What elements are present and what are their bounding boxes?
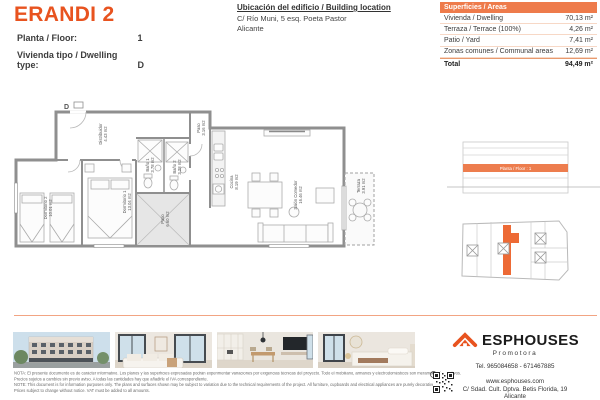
address-city: Alicante (430, 393, 600, 400)
row-label: Zonas comunes / Communal areas (444, 48, 553, 55)
address-line: C/ Sdad. Cult. Dptva. Betis Florida, 19 (430, 386, 600, 394)
qr-code (433, 372, 454, 393)
dwelling-type-row: Vivienda tipo / Dwelling type: D (17, 50, 144, 70)
room-label-dormitorio-2: Dormitorio 210.01 m2 (43, 196, 53, 219)
disclaimer-line: Prices subject to change without notice.… (14, 389, 422, 395)
dwelling-type-value: D (138, 60, 145, 70)
esphouses-house-icon (451, 330, 479, 351)
brand-logo-row: ESPHOUSES (430, 330, 600, 351)
floor-value: 1 (138, 33, 143, 43)
photo-kitchen-dining (217, 332, 313, 368)
building-location: Ubicación del edificio / Building locati… (237, 3, 391, 34)
contact-block: Tel. 965084658 - 671467885 www.esphouses… (430, 363, 600, 400)
site-plan-diagram (455, 218, 595, 310)
room-label-bano-1: Baño 13.78 m2 (145, 157, 155, 173)
room-label-bano-2: Baño 23.28 m2 (172, 159, 182, 175)
row-label: Vivienda / Dwelling (444, 15, 503, 22)
phone-line: Tel. 965084658 - 671467885 (430, 363, 600, 378)
row-label: Patio / Yard (444, 37, 480, 44)
areas-table-header: Superficies / Areas (440, 2, 597, 13)
disclaimer-line: NOTE: This document is for information p… (14, 383, 422, 389)
areas-table: Superficies / Areas Vivienda / Dwelling … (440, 2, 597, 70)
divider-rule (14, 315, 597, 316)
table-total-row: Total 94,49 m² (440, 58, 597, 70)
row-label: Terraza / Terrace (100%) (444, 26, 521, 33)
row-value: 70,13 m² (565, 15, 593, 22)
photo-building-exterior (13, 332, 110, 368)
row-value: 12,69 m² (565, 48, 593, 55)
building-location-city: Alicante (237, 24, 391, 34)
page-title: ERANDI 2 (14, 3, 114, 27)
building-location-address: C/ Río Muni, 5 esq. Poeta Pastor (237, 14, 391, 24)
table-row: Patio / Yard 7,41 m² (440, 35, 597, 46)
unit-letter: D (64, 104, 69, 111)
floor-plan: Distribuidor4.43 m2 Dormitorio 210.01 m2… (14, 98, 434, 255)
table-row: Zonas comunes / Communal areas 12,69 m² (440, 47, 597, 58)
disclaimer: NOTA: El presente documento es de caráct… (14, 371, 422, 394)
row-value: 4,26 m² (569, 26, 593, 33)
photo-living-room (115, 332, 212, 368)
floor-label: Planta / Floor: (17, 33, 135, 43)
room-label-terraza: Terraza3.91 m2 (356, 178, 366, 194)
table-row: Terraza / Terrace (100%) 4,26 m² (440, 24, 597, 35)
photo-bedroom (318, 332, 415, 368)
total-value: 94,49 m² (565, 61, 593, 68)
floor-row: Planta / Floor: 1 (17, 33, 143, 43)
dwelling-type-label: Vivienda tipo / Dwelling type: (17, 50, 135, 70)
brand-tagline: Promotora (430, 350, 600, 357)
disclaimer-line: NOTA: El presente documento es de caráct… (14, 371, 422, 377)
phone-number: Tel. 965084658 - 671467885 (476, 363, 555, 370)
highlighted-floor-label: Planta / Floor : 1 (500, 166, 532, 171)
building-location-title: Ubicación del edificio / Building locati… (237, 3, 391, 13)
brand-name: ESPHOUSES (482, 332, 579, 349)
room-label-cocina: Cocina8.19 m2 (229, 174, 239, 190)
total-label: Total (444, 61, 460, 68)
row-value: 7,41 m² (569, 37, 593, 44)
room-label-dormitorio-1: Dormitorio 113.04 m2 (122, 190, 132, 213)
website: www.esphouses.com (430, 378, 600, 386)
floor-lines (463, 148, 568, 178)
entrance-marker (74, 102, 83, 108)
elevation-diagram: Planta / Floor : 1 (447, 138, 600, 196)
flyer-page: ERANDI 2 Planta / Floor: 1 Vivienda tipo… (0, 0, 600, 400)
table-row: Vivienda / Dwelling 70,13 m² (440, 13, 597, 24)
